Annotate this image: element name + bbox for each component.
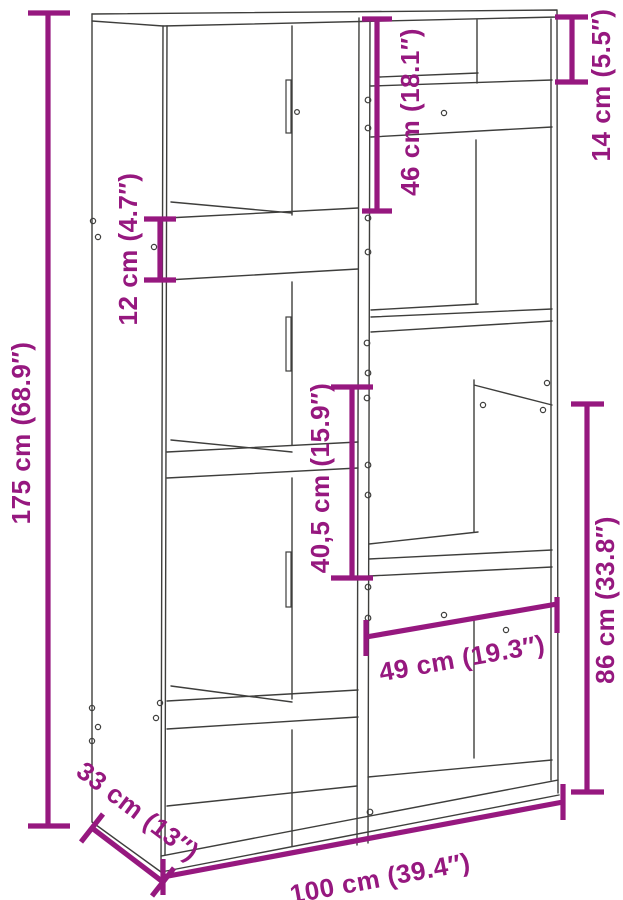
bookcase-dimension-diagram: 175 cm (68.9″) 12 cm (4.7″) 46 cm (18.1″… xyxy=(0,0,623,900)
center-divider xyxy=(357,18,370,845)
dimension-label-total-width: 100 cm (39.4″) xyxy=(287,847,472,900)
right-open-back-panel xyxy=(474,380,552,532)
dimension-label-lower-right-height: 86 cm (33.8″) xyxy=(590,516,620,684)
left-bottom-floor xyxy=(167,786,357,806)
dimension-line xyxy=(362,19,392,211)
dimension-middle-opening: 40,5 cm (15.9″) xyxy=(305,383,373,578)
top-panel-outline xyxy=(92,10,557,26)
dimension-line xyxy=(555,17,588,82)
support-strip xyxy=(286,552,291,607)
dimension-lower-right-height: 86 cm (33.8″) xyxy=(571,404,620,792)
support-strips xyxy=(286,80,291,607)
left-band-upper xyxy=(167,202,358,280)
right-bottom-floor xyxy=(368,760,552,777)
dimension-label-middle-opening: 40,5 cm (15.9″) xyxy=(305,383,335,574)
right-band-lower xyxy=(369,532,552,576)
left-band-lower xyxy=(167,686,358,729)
dimension-top-compartment: 14 cm (5.5″) xyxy=(555,9,616,162)
dimension-label-depth: 33 cm (13″) xyxy=(71,755,205,866)
dimension-line xyxy=(331,387,373,578)
dimension-total-width: 100 cm (39.4″) xyxy=(163,784,563,900)
front-left-edge xyxy=(161,26,167,872)
dimension-lower-opening-width: 49 cm (19.3″) xyxy=(366,597,557,687)
plinth-base xyxy=(161,780,559,872)
dimension-line xyxy=(144,219,176,280)
dimension-total-height: 175 cm (68.9″) xyxy=(6,13,70,826)
dimension-label-upper-opening: 46 cm (18.1″) xyxy=(395,28,425,196)
dimension-label-top-compartment: 14 cm (5.5″) xyxy=(586,9,616,162)
dimension-upper-opening: 46 cm (18.1″) xyxy=(362,19,425,211)
dimension-label-lower-opening-width: 49 cm (19.3″) xyxy=(377,629,547,688)
dimension-label-shelf-gap: 12 cm (4.7″) xyxy=(113,173,143,326)
side-panel-outline xyxy=(92,14,161,872)
right-band-middle xyxy=(371,304,552,332)
dimension-annotations: 175 cm (68.9″) 12 cm (4.7″) 46 cm (18.1″… xyxy=(6,9,620,900)
support-strip xyxy=(286,80,291,133)
support-strip xyxy=(286,317,291,371)
dimension-label-total-height: 175 cm (68.9″) xyxy=(6,342,36,525)
product-dimension-image: 175 cm (68.9″) 12 cm (4.7″) 46 cm (18.1″… xyxy=(0,0,623,900)
